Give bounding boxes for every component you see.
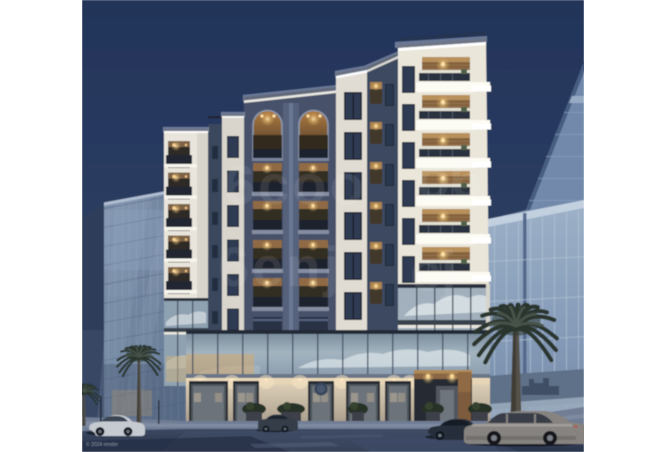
svg-text:6enj: 6enj (218, 235, 342, 298)
svg-text:o6: o6 (416, 147, 481, 210)
svg-text:6coo: 6coo (224, 153, 367, 216)
svg-text:© 2024 render: © 2024 render (86, 441, 118, 448)
svg-text:ej: ej (410, 239, 457, 302)
